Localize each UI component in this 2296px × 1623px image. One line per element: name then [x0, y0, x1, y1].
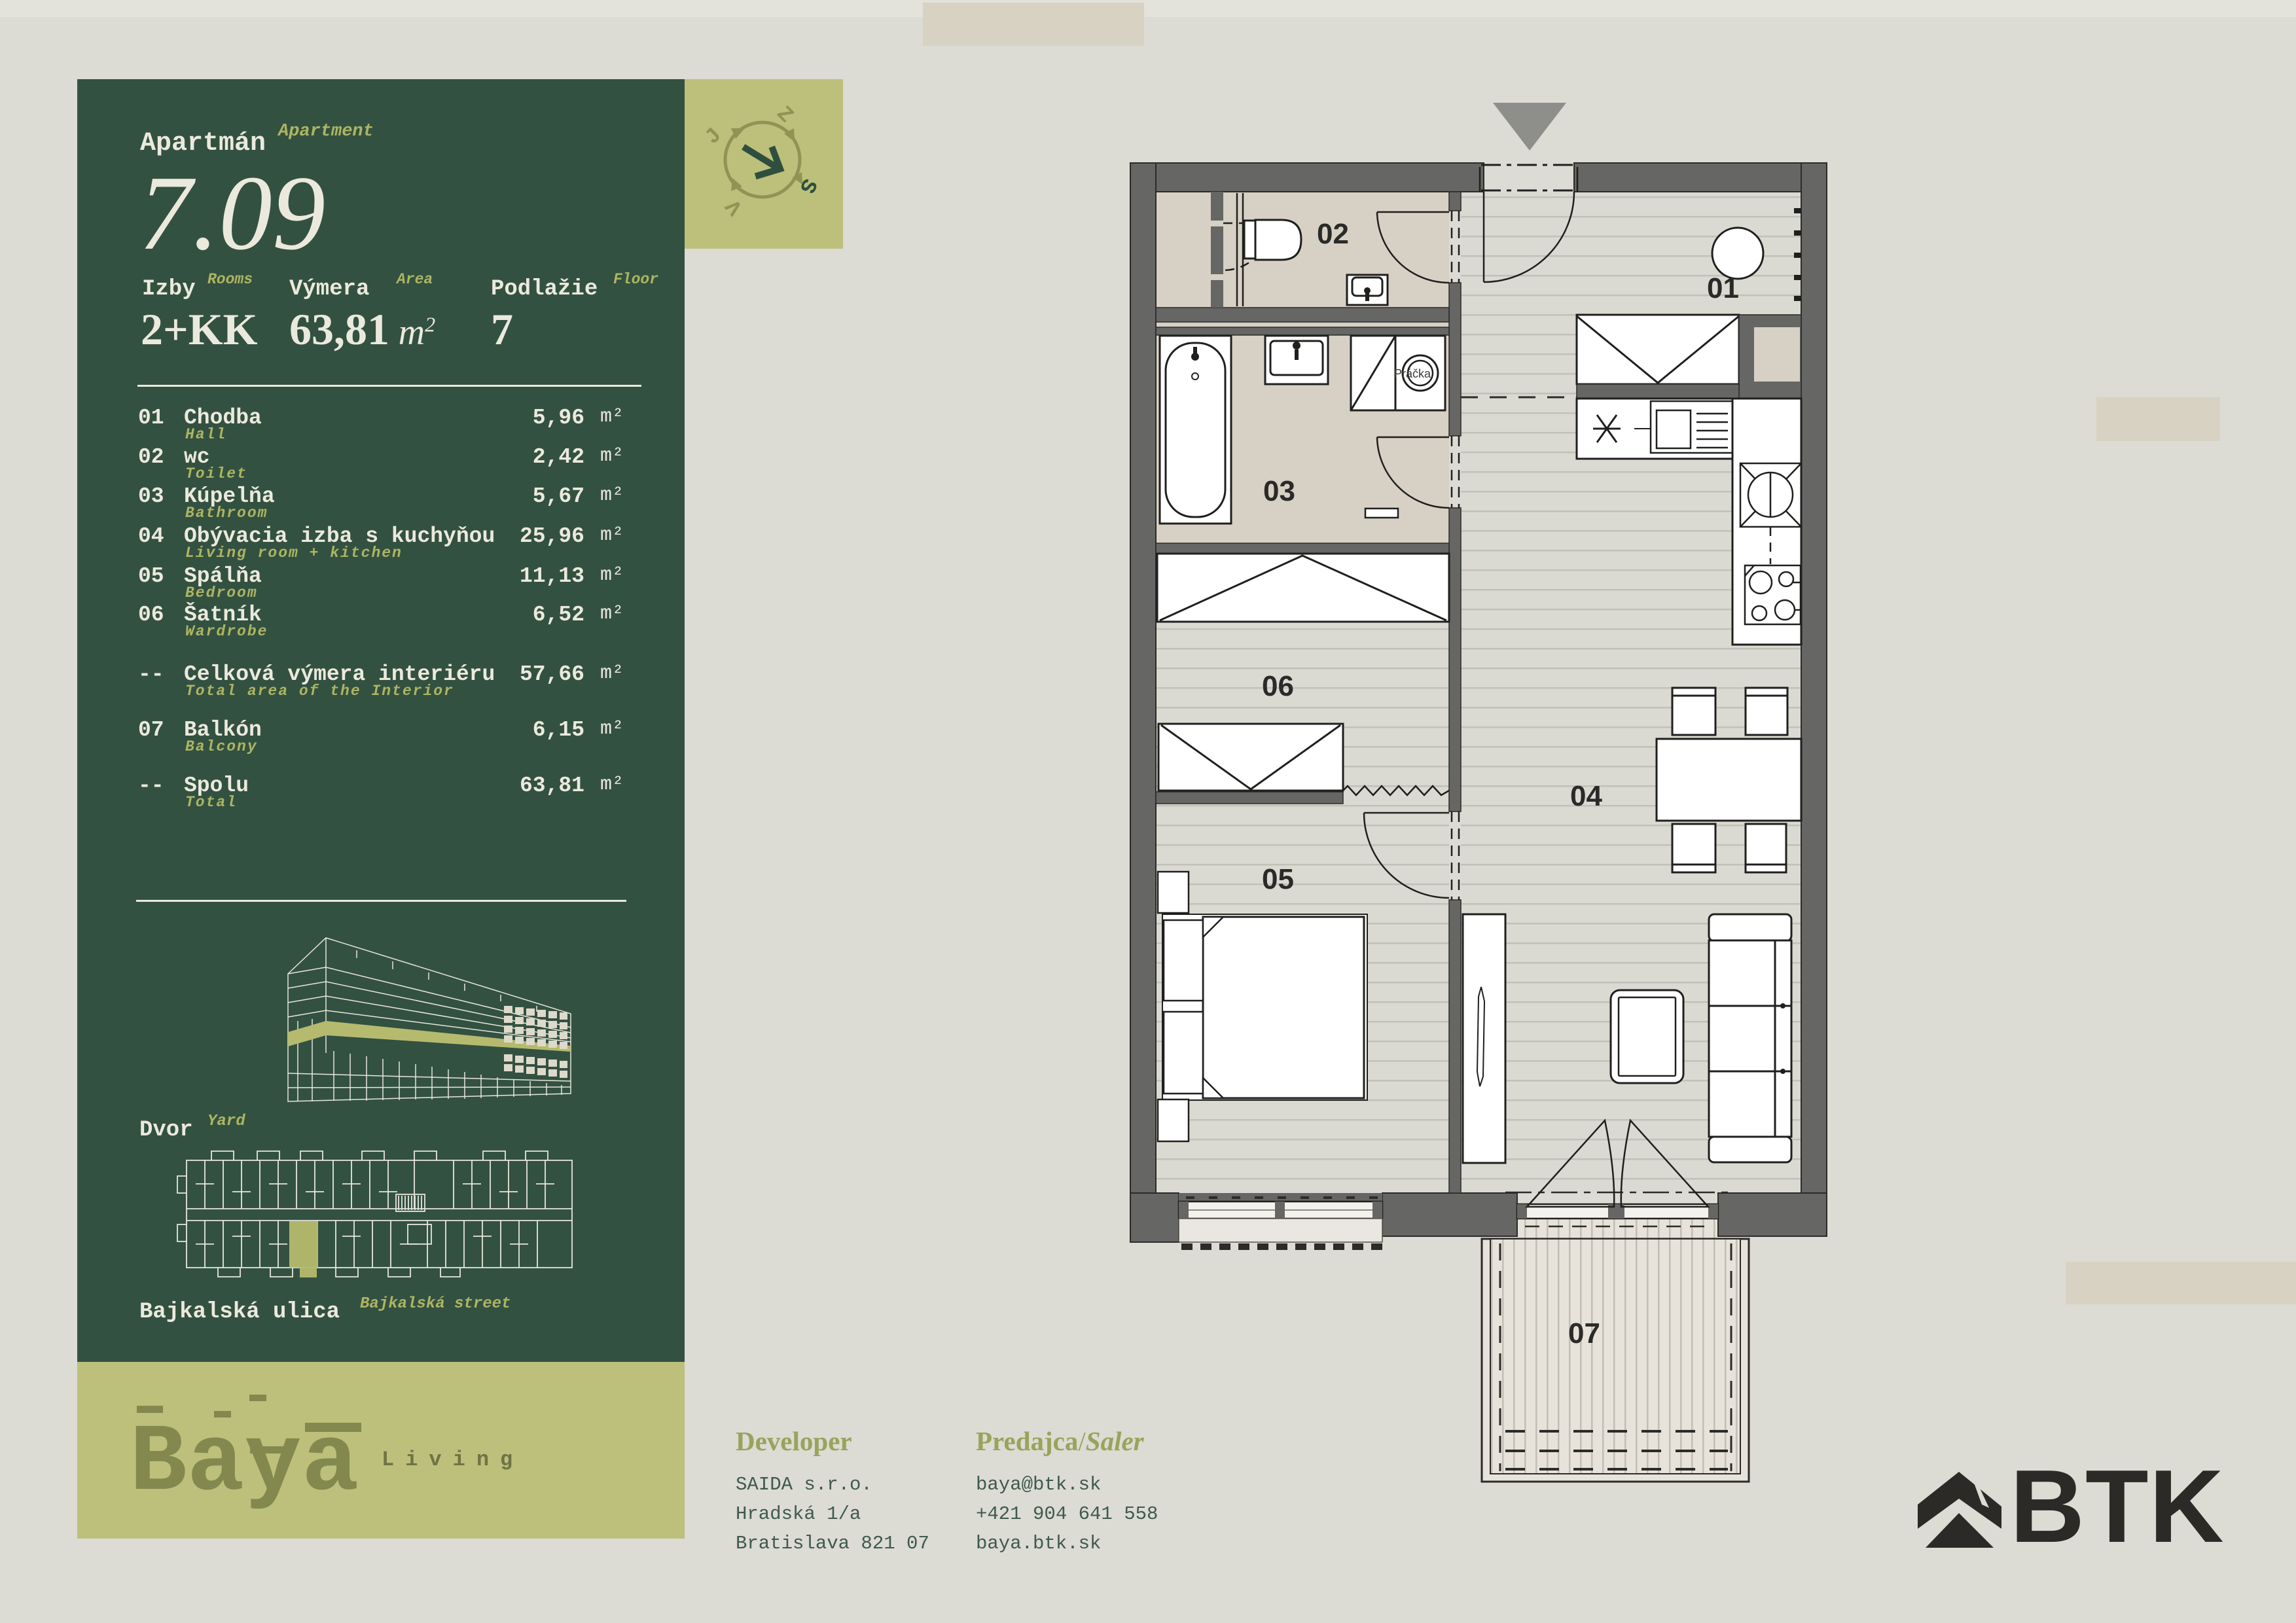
- svg-text:05: 05: [1262, 863, 1294, 895]
- svg-text:01: 01: [1707, 272, 1739, 304]
- svg-text:02: 02: [1317, 218, 1349, 250]
- svg-text:Práčka: Práčka: [1394, 367, 1431, 380]
- svg-text:03: 03: [1263, 475, 1295, 507]
- svg-text:06: 06: [1262, 670, 1294, 702]
- svg-text:04: 04: [1570, 780, 1602, 812]
- svg-text:07: 07: [1568, 1317, 1600, 1349]
